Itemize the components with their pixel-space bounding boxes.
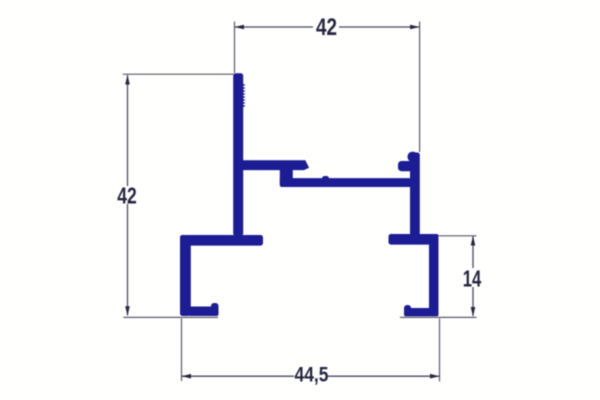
svg-text:14: 14 [463,266,482,292]
svg-text:42: 42 [316,14,337,41]
svg-text:42: 42 [117,183,137,209]
svg-text:44,5: 44,5 [295,364,329,387]
